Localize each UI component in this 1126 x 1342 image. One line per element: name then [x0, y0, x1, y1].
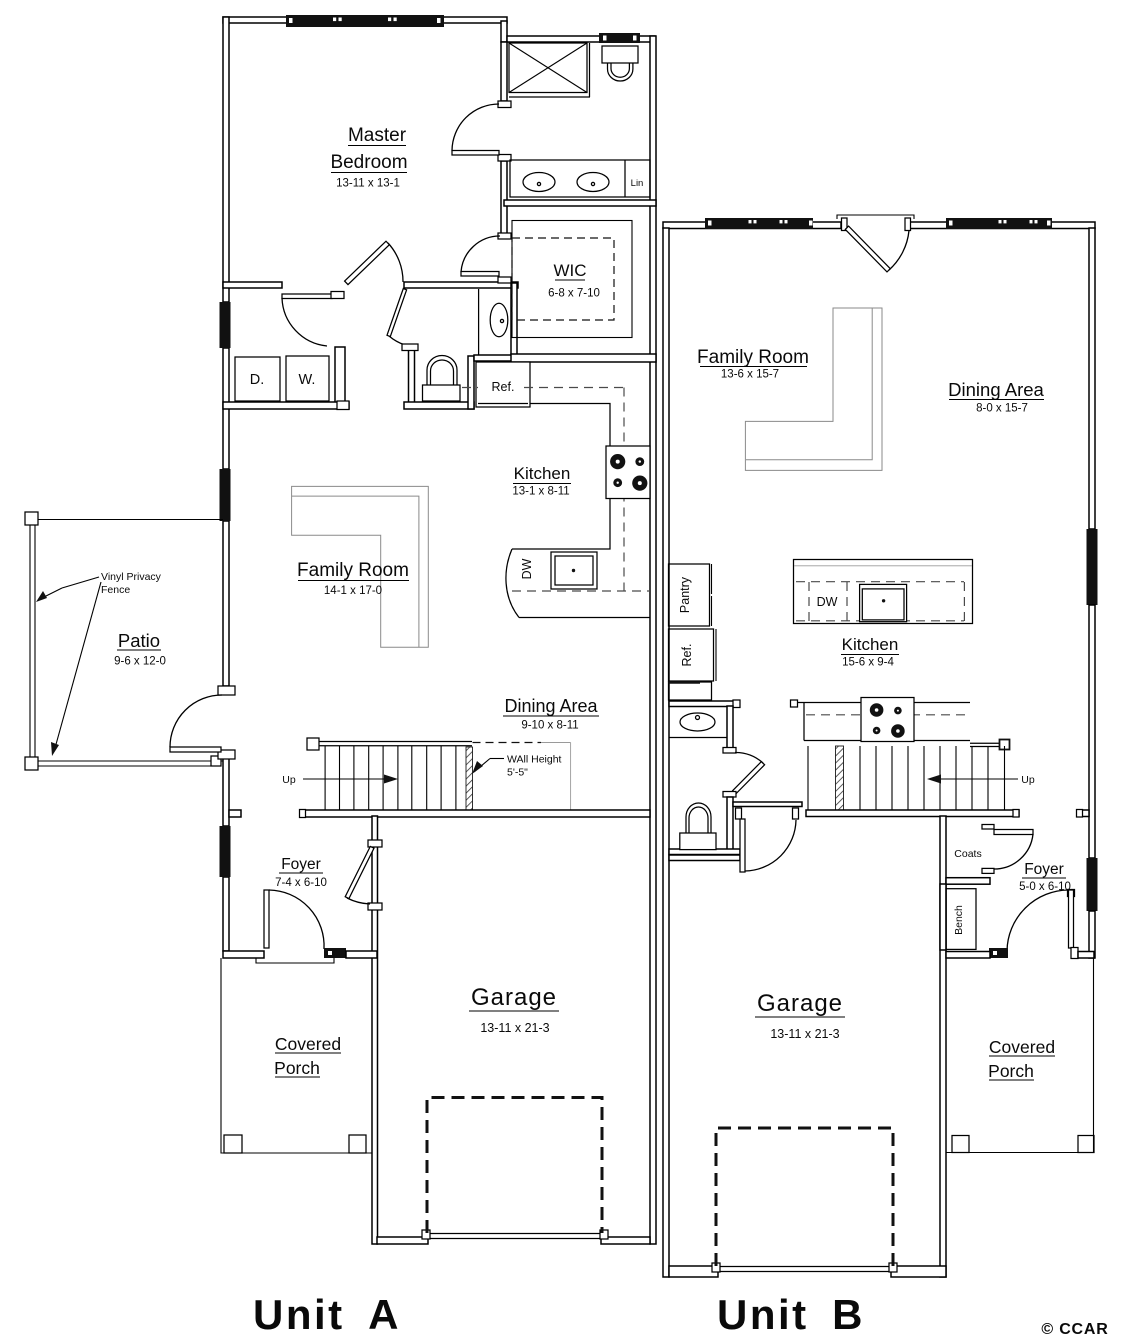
- svg-text:Garage: Garage: [471, 984, 557, 1011]
- svg-text:Lin: Lin: [631, 178, 644, 189]
- svg-text:Fence: Fence: [101, 584, 130, 596]
- svg-text:Kitchen: Kitchen: [514, 464, 571, 483]
- svg-text:Up: Up: [1021, 774, 1035, 786]
- svg-text:Ref.: Ref.: [680, 644, 694, 667]
- svg-text:© CCAR: © CCAR: [1041, 1321, 1108, 1338]
- svg-text:Covered: Covered: [989, 1037, 1055, 1057]
- svg-text:Up: Up: [282, 774, 296, 786]
- svg-text:7-4 x 6-10: 7-4 x 6-10: [275, 877, 327, 889]
- svg-text:DW: DW: [520, 558, 534, 579]
- svg-text:Dining Area: Dining Area: [504, 696, 598, 716]
- svg-text:9-6 x 12-0: 9-6 x 12-0: [114, 656, 166, 668]
- svg-text:5-0 x 6-10: 5-0 x 6-10: [1019, 881, 1071, 893]
- svg-text:Family Room: Family Room: [297, 560, 409, 581]
- svg-text:15-6 x 9-4: 15-6 x 9-4: [842, 657, 894, 669]
- svg-text:DW: DW: [817, 595, 838, 609]
- svg-text:13-11 x 13-1: 13-11 x 13-1: [336, 178, 400, 190]
- svg-text:13-1 x 8-11: 13-1 x 8-11: [512, 486, 569, 498]
- svg-text:Ref.: Ref.: [492, 380, 515, 394]
- svg-text:Dining Area: Dining Area: [948, 379, 1044, 400]
- svg-text:Bench: Bench: [953, 905, 965, 935]
- svg-text:8-0 x 15-7: 8-0 x 15-7: [976, 403, 1028, 415]
- svg-text:Pantry: Pantry: [678, 576, 692, 613]
- svg-text:5'-5": 5'-5": [507, 767, 528, 779]
- svg-text:Kitchen: Kitchen: [842, 635, 899, 654]
- svg-text:Porch: Porch: [988, 1061, 1034, 1081]
- svg-text:Patio: Patio: [118, 630, 160, 651]
- svg-text:6-8 x 7-10: 6-8 x 7-10: [548, 288, 600, 300]
- svg-text:Unit A: Unit A: [253, 1291, 401, 1338]
- svg-text:13-11 x 21-3: 13-11 x 21-3: [770, 1027, 839, 1041]
- svg-text:Master: Master: [348, 125, 407, 146]
- svg-text:D.: D.: [250, 372, 265, 388]
- svg-text:9-10 x 8-11: 9-10 x 8-11: [521, 720, 578, 732]
- svg-text:Coats: Coats: [954, 848, 981, 860]
- svg-text:Covered: Covered: [275, 1034, 341, 1054]
- svg-text:13-11 x 21-3: 13-11 x 21-3: [480, 1021, 549, 1035]
- svg-text:Bedroom: Bedroom: [330, 152, 407, 173]
- svg-text:Unit B: Unit B: [717, 1291, 865, 1338]
- svg-text:Porch: Porch: [274, 1058, 320, 1078]
- svg-text:Vinyl Privacy: Vinyl Privacy: [101, 571, 162, 583]
- svg-text:Family Room: Family Room: [697, 347, 809, 368]
- svg-text:Foyer: Foyer: [1024, 861, 1064, 878]
- svg-text:Foyer: Foyer: [281, 856, 321, 873]
- svg-text:14-1 x 17-0: 14-1 x 17-0: [324, 585, 382, 597]
- svg-text:WIC: WIC: [553, 261, 586, 280]
- svg-text:Garage: Garage: [757, 990, 843, 1017]
- svg-text:W.: W.: [299, 372, 316, 388]
- svg-text:WAll Height: WAll Height: [507, 754, 562, 766]
- svg-text:13-6 x 15-7: 13-6 x 15-7: [721, 369, 779, 381]
